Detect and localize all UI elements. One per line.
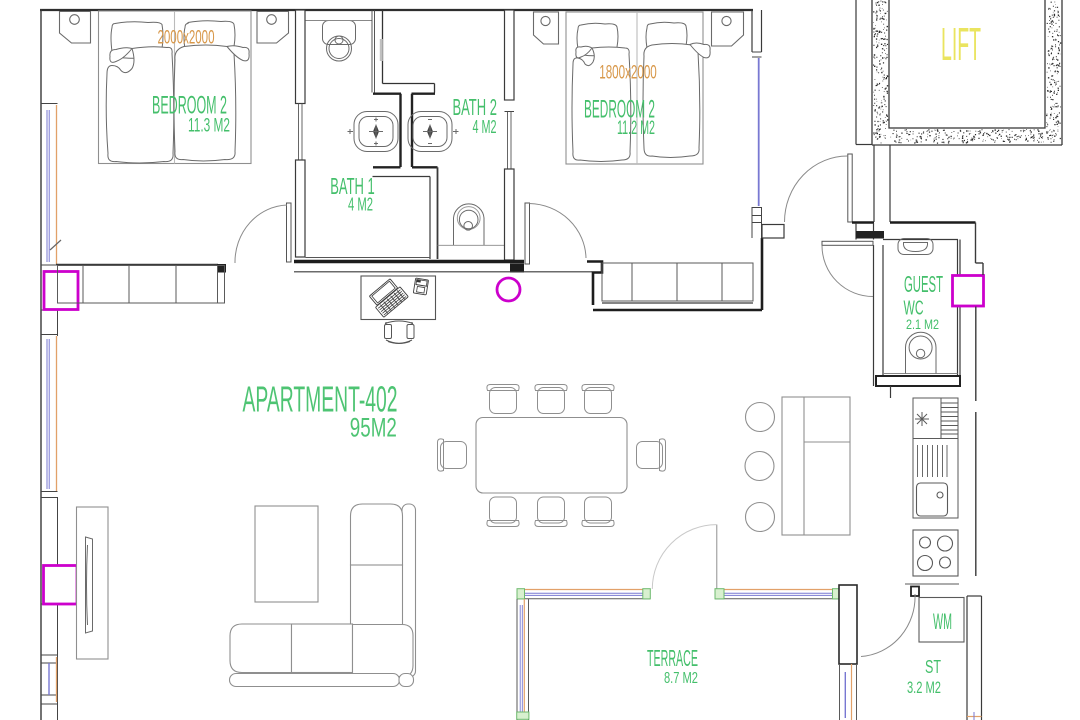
- svg-text:4 M2: 4 M2: [348, 195, 373, 215]
- svg-text:2.1 M2: 2.1 M2: [906, 316, 939, 332]
- svg-text:ST: ST: [925, 657, 941, 677]
- svg-text:GUEST: GUEST: [904, 271, 943, 297]
- svg-text:8.7 M2: 8.7 M2: [664, 670, 698, 687]
- svg-text:TERRACE: TERRACE: [647, 645, 698, 671]
- svg-text:LIFT: LIFT: [941, 18, 981, 70]
- svg-text:1800x2000: 1800x2000: [599, 62, 657, 84]
- svg-text:11.2 M2: 11.2 M2: [617, 118, 655, 139]
- svg-text:2000x2000: 2000x2000: [158, 27, 215, 49]
- svg-text:WM: WM: [933, 609, 952, 634]
- svg-text:95M2: 95M2: [350, 413, 397, 443]
- svg-text:3.2 M2: 3.2 M2: [907, 679, 941, 697]
- svg-text:11.3 M2: 11.3 M2: [188, 116, 230, 137]
- svg-text:4 M2: 4 M2: [473, 117, 497, 137]
